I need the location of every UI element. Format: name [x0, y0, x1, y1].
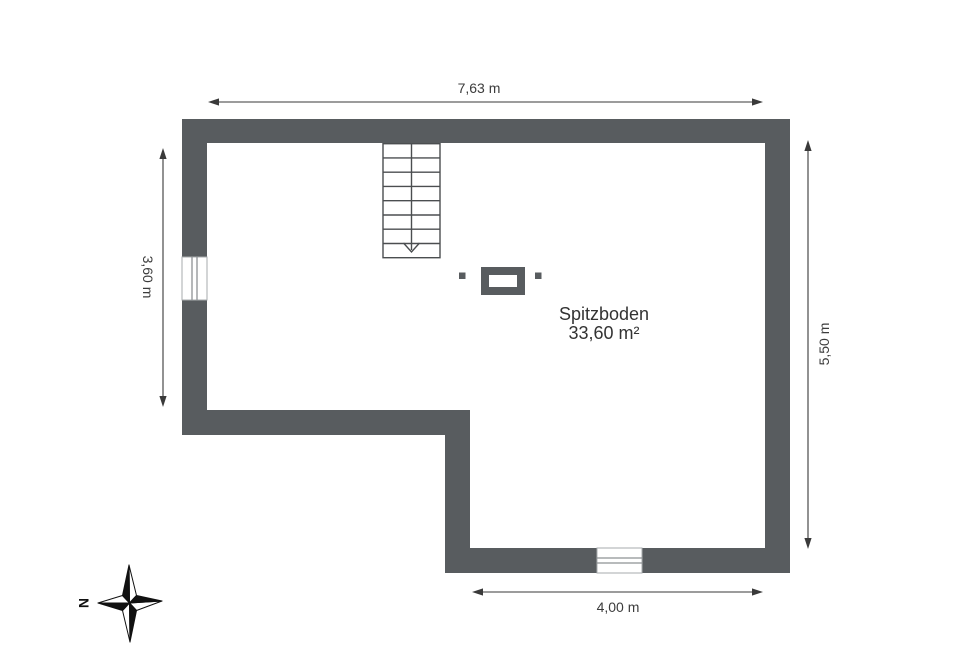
bottom-window: [597, 548, 642, 573]
dimension-bottom-arrow: [472, 588, 763, 595]
dimension-right-arrow: [804, 140, 811, 549]
chimney: [459, 271, 542, 291]
dimension-left-arrow: [159, 148, 166, 407]
dimension-left-label: 3,60 m: [140, 256, 156, 299]
floor-plan-canvas: 7,63 m 3,60 m 5,50 m 4,00 m Spitzboden 3…: [0, 0, 960, 648]
exterior-walls: [182, 119, 790, 573]
compass-rose-icon: [98, 565, 162, 642]
room-area: 33,60 m²: [559, 324, 649, 343]
chimney-post-left: [459, 273, 466, 280]
room-label: Spitzboden 33,60 m²: [559, 305, 649, 343]
room-name: Spitzboden: [559, 305, 649, 324]
dimension-right-label: 5,50 m: [816, 323, 832, 366]
left-window: [182, 257, 207, 300]
staircase: [383, 144, 440, 258]
dimension-top-label: 7,63 m: [458, 80, 501, 96]
chimney-post-right: [535, 273, 542, 280]
dimension-arrows: [159, 98, 811, 595]
dimension-top-arrow: [208, 98, 763, 105]
dimension-bottom-label: 4,00 m: [597, 599, 640, 615]
compass-north-label: N: [76, 598, 92, 608]
